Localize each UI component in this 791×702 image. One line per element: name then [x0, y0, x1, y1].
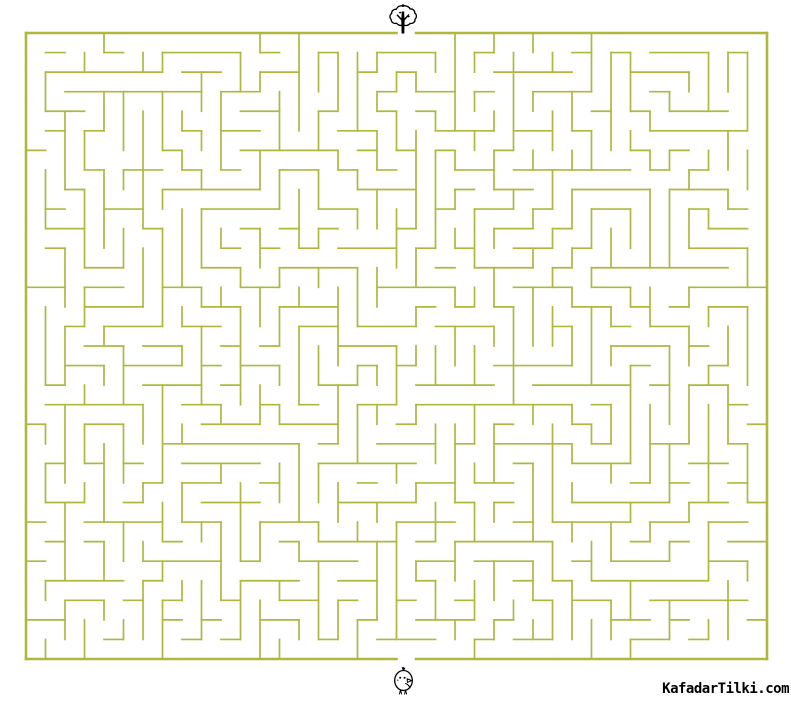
site-watermark: KafadarTilki.com — [662, 681, 789, 697]
tree-icon — [387, 4, 419, 34]
maze-svg — [26, 33, 767, 659]
chick-icon — [391, 666, 419, 697]
maze-worksheet: KafadarTilki.com — [0, 0, 791, 702]
